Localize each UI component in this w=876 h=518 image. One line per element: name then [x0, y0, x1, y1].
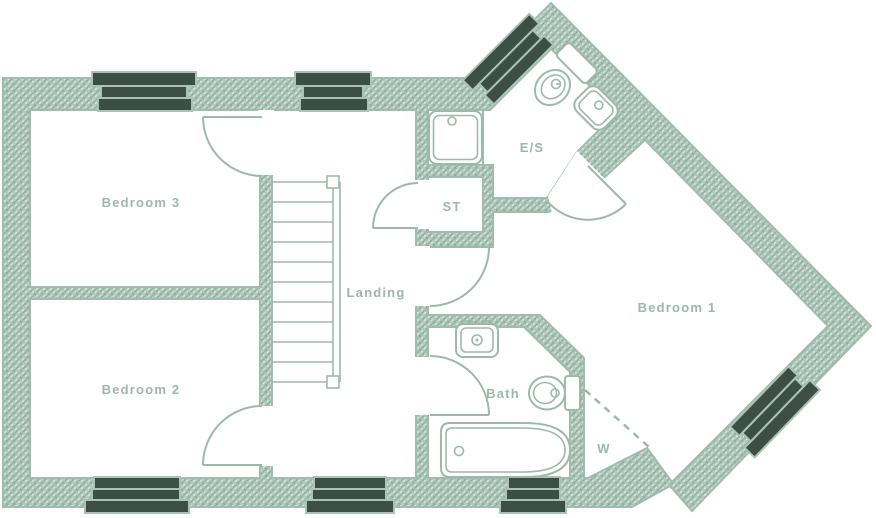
landing-label: Landing [347, 285, 406, 300]
bathtub-icon [441, 423, 570, 477]
handrail-post-top [327, 176, 339, 188]
window-bottom-landing [306, 477, 394, 513]
bedroom-3-door-opening [258, 110, 274, 175]
bedroom-2-door-opening [258, 406, 274, 466]
storage-label: ST [442, 199, 461, 214]
bedroom-2-label: Bedroom 2 [102, 382, 181, 397]
window-top-bedroom-3 [92, 72, 196, 111]
window-bottom-bedroom-2 [85, 477, 189, 513]
storage-door-opening [414, 180, 430, 229]
bedroom-3-label: Bedroom 3 [102, 195, 181, 210]
bath-basin-icon [456, 321, 498, 357]
ensuite-label: E/S [520, 140, 545, 155]
handrail-post-bottom [327, 376, 339, 388]
bath-door-opening [414, 357, 430, 415]
window-bottom-bath [500, 477, 566, 513]
bath-toilet-icon [529, 376, 580, 410]
shower-tray-icon [429, 111, 482, 164]
floor-plan: Bedroom 3 Bedroom 2 Landing ST E/S Bedro… [0, 0, 876, 518]
bedroom-1-door-opening [414, 246, 430, 306]
bedroom-1-label: Bedroom 1 [638, 300, 717, 315]
window-top-landing [295, 72, 371, 111]
wardrobe-label: W [597, 441, 610, 456]
floor-plan-page: Bedroom 3 Bedroom 2 Landing ST E/S Bedro… [0, 0, 876, 518]
bath-label: Bath [486, 386, 520, 401]
